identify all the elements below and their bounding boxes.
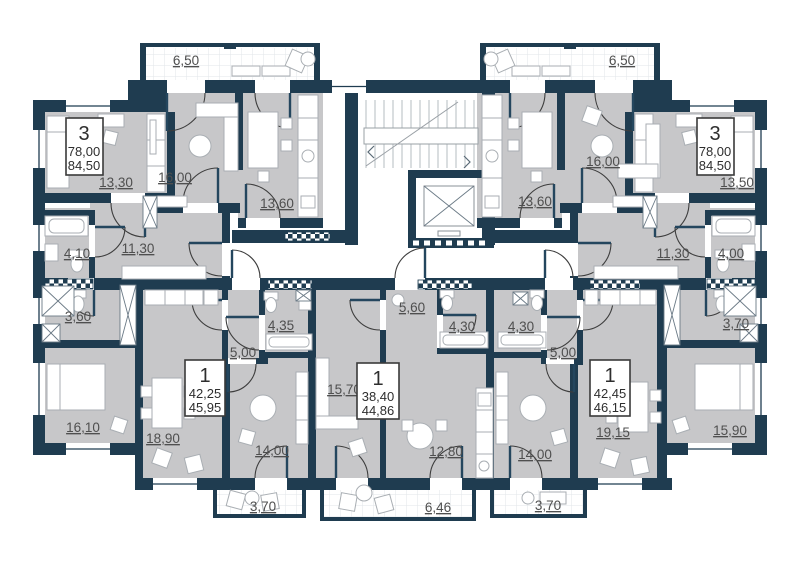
- badge-rooms-count: 3: [78, 123, 89, 145]
- badge-rooms-count: 1: [199, 365, 210, 387]
- room-label-wc-360: 3,60: [65, 309, 91, 324]
- badge-area-living: 42,25: [189, 386, 222, 401]
- room-label-balcony-bc: 6,46: [425, 500, 451, 515]
- badge-area-living: 42,45: [594, 386, 627, 401]
- badge-area-total: 44,86: [362, 403, 395, 418]
- room-label-hall-left: 11,30: [122, 241, 155, 256]
- room-label-bath-400: 4,00: [718, 246, 744, 261]
- room-label-studio-1890: 18,90: [146, 431, 180, 446]
- room-label-bath-430-center: 4,30: [449, 319, 475, 334]
- badge-area-living: 38,40: [362, 389, 395, 404]
- floor-plan-drawing: 6,50 13,30 16,00 13,60 4,10 11,30 3,60 1…: [0, 0, 800, 565]
- room-label-hall-560: 5,60: [399, 300, 425, 315]
- room-label-balcony-top-left: 6,50: [173, 53, 199, 68]
- room-label-studio-1915: 19,15: [596, 425, 630, 440]
- badge-area-living: 78,00: [699, 144, 732, 159]
- room-label-wc-370: 3,70: [723, 316, 749, 331]
- room-label-bedroom-1590: 15,90: [713, 423, 747, 438]
- room-label-hall-right: 11,30: [657, 246, 690, 261]
- stair-landing: [364, 128, 478, 144]
- room-label-hall-br-500: 5,00: [550, 345, 576, 360]
- room-label-living-left: 16,00: [158, 170, 192, 185]
- badge-apt-3-left: 3 78,00 84,50: [66, 118, 103, 175]
- badge-area-total: 84,50: [68, 158, 101, 173]
- room-label-bedroom-1330: 13,30: [99, 175, 133, 190]
- badge-rooms-count: 3: [709, 123, 720, 145]
- badge-apt-1-left: 1 42,25 45,95: [185, 360, 225, 416]
- room-label-balcony-top-right: 6,50: [609, 53, 635, 68]
- badge-apt-1-center: 1 38,40 44,86: [357, 363, 399, 419]
- room-label-balcony-br: 3,70: [535, 498, 561, 513]
- room-label-room-1400-left: 14,00: [255, 443, 289, 458]
- room-label-kitchen-right: 13,60: [518, 194, 552, 209]
- room-label-kitchen-left: 13,60: [260, 196, 294, 211]
- floor-plan: 6,50 13,30 16,00 13,60 4,10 11,30 3,60 1…: [0, 0, 800, 565]
- badge-area-total: 45,95: [189, 400, 222, 415]
- room-label-bath-430-right: 4,30: [508, 319, 534, 334]
- badge-area-total: 84,50: [699, 158, 732, 173]
- elevator: [424, 186, 474, 236]
- badge-area-living: 78,00: [68, 144, 101, 159]
- room-label-bedroom-1350: 13,50: [720, 175, 754, 190]
- room-label-hall-bl-500: 5,00: [230, 345, 256, 360]
- room-label-bath-410: 4,10: [64, 246, 90, 261]
- room-label-living-1570: 15,70: [327, 382, 361, 397]
- badge-apt-1-right: 1 42,45 46,15: [590, 360, 630, 416]
- badge-apt-3-right: 3 78,00 84,50: [697, 118, 734, 175]
- badge-rooms-count: 1: [604, 365, 615, 387]
- room-label-balcony-bl: 3,70: [250, 499, 276, 514]
- room-label-living-right: 16,00: [586, 154, 620, 169]
- stairwell: [364, 100, 478, 236]
- room-label-bath-435: 4,35: [268, 318, 294, 333]
- stair-arrow-up-icon: [368, 146, 374, 158]
- room-label-room-1400-right: 14,00: [518, 447, 552, 462]
- badge-rooms-count: 1: [372, 368, 383, 390]
- badge-area-total: 46,15: [594, 400, 627, 415]
- room-label-kitchen-1280: 12,80: [429, 444, 463, 459]
- room-label-bedroom-1610: 16,10: [66, 420, 100, 435]
